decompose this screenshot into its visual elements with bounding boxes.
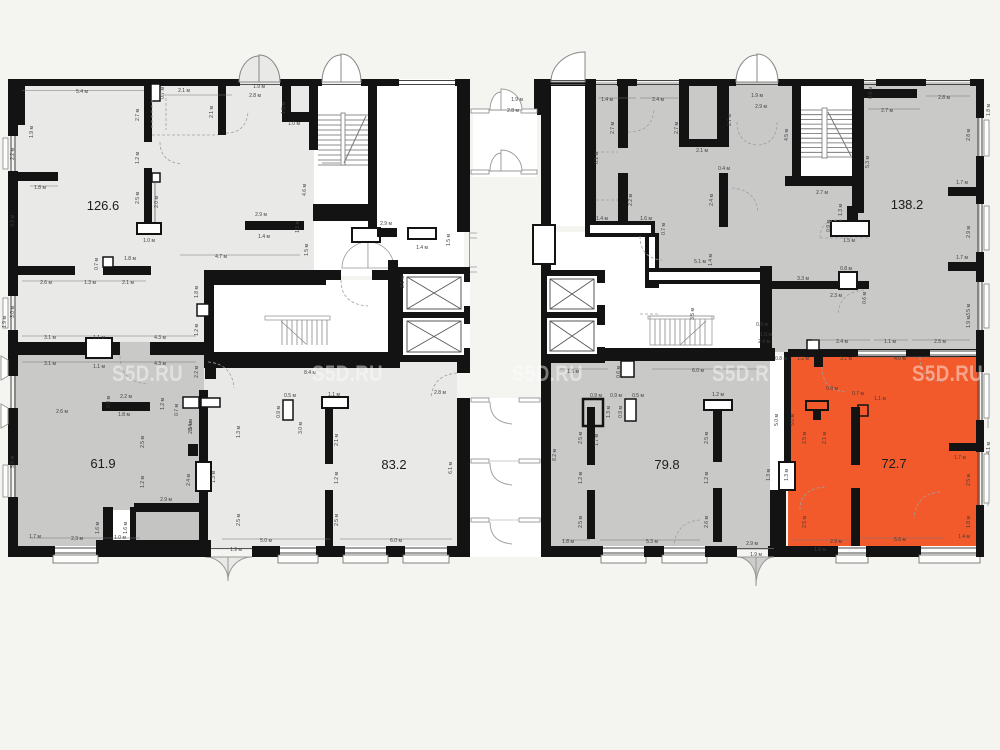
- svg-text:1.7 м: 1.7 м: [29, 534, 41, 540]
- svg-text:2.2 м: 2.2 м: [628, 194, 634, 206]
- svg-text:2.4 м: 2.4 м: [652, 97, 664, 103]
- svg-text:3.1 м: 3.1 м: [44, 335, 56, 341]
- svg-text:1.4 м: 1.4 м: [596, 216, 608, 222]
- svg-text:1.7 м: 1.7 м: [594, 434, 600, 446]
- svg-text:0.8 м: 0.8 м: [840, 266, 852, 272]
- svg-text:6.0 м: 6.0 м: [390, 538, 402, 544]
- svg-text:2.9 м: 2.9 м: [830, 539, 842, 545]
- svg-text:1.9 м: 1.9 м: [750, 552, 762, 558]
- svg-text:1.6 м: 1.6 м: [123, 522, 129, 534]
- svg-text:1.9 м: 1.9 м: [29, 126, 35, 138]
- svg-text:6.1 м: 6.1 м: [594, 152, 600, 164]
- svg-text:1.2 м: 1.2 м: [704, 472, 710, 484]
- svg-text:S5D.RU: S5D.RU: [312, 363, 383, 387]
- svg-text:1.1 м: 1.1 м: [874, 396, 886, 402]
- svg-text:2.7 м: 2.7 м: [881, 108, 893, 114]
- svg-text:3.3 м: 3.3 м: [797, 276, 809, 282]
- svg-text:1.2 м: 1.2 м: [194, 324, 200, 336]
- svg-text:5.3 м: 5.3 м: [646, 539, 658, 545]
- svg-text:0.9 м: 0.9 м: [756, 322, 768, 328]
- svg-text:8.2 м: 8.2 м: [552, 449, 558, 461]
- svg-text:1.9 м: 1.9 м: [253, 84, 265, 90]
- svg-text:2.0 м: 2.0 м: [154, 196, 160, 208]
- svg-text:5.0 м: 5.0 м: [790, 414, 796, 426]
- svg-text:5.4 м: 5.4 м: [76, 89, 88, 95]
- svg-text:2.3 м: 2.3 м: [71, 536, 83, 542]
- svg-text:2.5 м: 2.5 м: [140, 436, 146, 448]
- svg-text:4.7 м: 4.7 м: [215, 254, 227, 260]
- svg-text:0.8 м: 0.8 м: [106, 396, 112, 408]
- svg-text:S5D.RU: S5D.RU: [112, 363, 183, 387]
- svg-text:3.0 м: 3.0 м: [298, 422, 304, 434]
- svg-text:0.8 м: 0.8 м: [775, 356, 787, 362]
- svg-text:5.8 м: 5.8 м: [10, 456, 16, 468]
- svg-text:2.4 м: 2.4 м: [758, 339, 770, 345]
- svg-text:2.6 м: 2.6 м: [704, 516, 710, 528]
- svg-text:1.2 м: 1.2 м: [578, 472, 584, 484]
- svg-text:0.4 м: 0.4 м: [718, 166, 730, 172]
- svg-text:4.0 м: 4.0 м: [894, 356, 906, 362]
- svg-text:2.8 м: 2.8 м: [507, 108, 519, 114]
- svg-text:2.8 м: 2.8 м: [938, 95, 950, 101]
- svg-text:0.9 м: 0.9 м: [826, 220, 832, 232]
- svg-text:1.0 м: 1.0 м: [288, 121, 300, 127]
- svg-text:1.9 м: 1.9 м: [966, 316, 972, 328]
- svg-text:2.5 м: 2.5 м: [802, 432, 808, 444]
- svg-text:1.9 м: 1.9 м: [814, 547, 826, 553]
- svg-text:2.7 м: 2.7 м: [610, 122, 616, 134]
- svg-text:2.5 м: 2.5 м: [578, 432, 584, 444]
- svg-text:2.1 м: 2.1 м: [696, 148, 708, 154]
- svg-text:3.5 м: 3.5 м: [690, 308, 696, 320]
- svg-text:1.4 м: 1.4 м: [601, 97, 613, 103]
- svg-text:1.5 м: 1.5 м: [295, 221, 301, 233]
- svg-text:3.1 м: 3.1 м: [840, 356, 852, 362]
- svg-text:1.3 м: 1.3 м: [84, 280, 96, 286]
- svg-text:2.9 м: 2.9 м: [755, 104, 767, 110]
- svg-text:1.8 м: 1.8 м: [966, 516, 972, 528]
- svg-text:1.5 м: 1.5 м: [843, 238, 855, 244]
- svg-text:2.8 м: 2.8 м: [966, 129, 972, 141]
- svg-text:2.7 м: 2.7 м: [727, 114, 733, 126]
- svg-text:79.8: 79.8: [654, 457, 679, 472]
- svg-text:1.3 м: 1.3 м: [606, 406, 612, 418]
- svg-text:83.2: 83.2: [381, 457, 406, 472]
- svg-text:1.9 м: 1.9 м: [751, 93, 763, 99]
- svg-text:0.7 м: 0.7 м: [160, 87, 166, 99]
- svg-text:6.0 м: 6.0 м: [692, 368, 704, 374]
- svg-text:1.5 м: 1.5 м: [281, 102, 287, 114]
- svg-text:0.6 м: 0.6 м: [862, 292, 868, 304]
- svg-text:2.6 м: 2.6 м: [40, 280, 52, 286]
- svg-text:1.6 м: 1.6 м: [640, 216, 652, 222]
- svg-text:0.9 м: 0.9 м: [826, 386, 838, 392]
- svg-text:0.6 м: 0.6 м: [616, 366, 622, 378]
- svg-text:0.5 м: 0.5 м: [284, 393, 296, 399]
- svg-text:0.7 м: 0.7 м: [852, 391, 864, 397]
- svg-text:2.5 м: 2.5 м: [704, 432, 710, 444]
- svg-text:1.7 м: 1.7 м: [956, 180, 968, 186]
- svg-text:1.3 м: 1.3 м: [784, 469, 790, 481]
- svg-text:1.5 м: 1.5 м: [446, 234, 452, 246]
- svg-text:1.2 м: 1.2 м: [135, 152, 141, 164]
- svg-text:1.4 м: 1.4 м: [708, 254, 714, 266]
- svg-text:0.9 м: 0.9 м: [276, 406, 282, 418]
- svg-text:3.5 м: 3.5 м: [966, 304, 972, 316]
- svg-text:61.9: 61.9: [90, 456, 115, 471]
- svg-text:2.7 м: 2.7 м: [135, 109, 141, 121]
- svg-text:1.3 м: 1.3 м: [236, 426, 242, 438]
- svg-text:5.3 м: 5.3 м: [865, 156, 871, 168]
- svg-text:126.6: 126.6: [87, 198, 120, 213]
- svg-text:2.9 м: 2.9 м: [255, 212, 267, 218]
- svg-text:2.5 м: 2.5 м: [966, 474, 972, 486]
- svg-text:S5D.RU: S5D.RU: [712, 363, 783, 387]
- svg-text:1.8 м: 1.8 м: [34, 185, 46, 191]
- svg-text:2.7 м: 2.7 м: [816, 190, 828, 196]
- svg-text:1.6 м: 1.6 м: [760, 332, 772, 338]
- svg-text:4.3 м: 4.3 м: [154, 335, 166, 341]
- svg-text:1.3 м: 1.3 м: [766, 469, 772, 481]
- svg-text:3.9 м: 3.9 м: [10, 215, 16, 227]
- svg-text:1.1 м: 1.1 м: [328, 392, 340, 398]
- svg-text:72.7: 72.7: [881, 456, 906, 471]
- svg-text:2.2 м: 2.2 м: [194, 366, 200, 378]
- svg-text:1.8 м: 1.8 м: [562, 539, 574, 545]
- svg-text:2.8 м: 2.8 м: [249, 93, 261, 99]
- svg-text:0.9 м: 0.9 м: [610, 393, 622, 399]
- svg-text:2.5 м: 2.5 м: [934, 339, 946, 345]
- svg-text:2.1 м: 2.1 м: [178, 88, 190, 94]
- svg-text:1.3 м: 1.3 м: [838, 204, 844, 216]
- svg-text:1.1 м: 1.1 м: [884, 339, 896, 345]
- svg-text:1.2 м: 1.2 м: [140, 476, 146, 488]
- svg-text:138.2: 138.2: [891, 197, 924, 212]
- svg-text:0.9 м: 0.9 м: [868, 87, 874, 99]
- svg-text:5.0 м: 5.0 м: [774, 414, 780, 426]
- svg-text:4.6 м: 4.6 м: [302, 184, 308, 196]
- svg-text:1.2 м: 1.2 м: [797, 356, 809, 362]
- svg-text:1.7 м: 1.7 м: [956, 255, 968, 261]
- svg-text:1.8 м: 1.8 м: [118, 412, 130, 418]
- svg-text:1.9 м: 1.9 м: [2, 316, 8, 328]
- svg-text:0.9 м: 0.9 м: [590, 393, 602, 399]
- svg-text:2.4 м: 2.4 м: [186, 474, 192, 486]
- svg-text:S5D.RU: S5D.RU: [912, 363, 983, 387]
- svg-text:1.9 м: 1.9 м: [511, 97, 523, 103]
- svg-text:0.9 м: 0.9 м: [618, 406, 624, 418]
- svg-text:2.1 м: 2.1 м: [122, 280, 134, 286]
- svg-text:2.1 м: 2.1 м: [822, 432, 828, 444]
- svg-text:0.7 м: 0.7 м: [661, 223, 667, 235]
- svg-text:1.2 м: 1.2 м: [712, 392, 724, 398]
- svg-text:5.1 м: 5.1 м: [694, 259, 706, 265]
- svg-text:2.6 м: 2.6 м: [56, 409, 68, 415]
- svg-text:0.7 м: 0.7 м: [94, 258, 100, 270]
- svg-text:2.3 м: 2.3 м: [830, 293, 842, 299]
- svg-text:2.5 м: 2.5 м: [188, 422, 194, 434]
- svg-text:2.2 м: 2.2 м: [10, 148, 16, 160]
- svg-text:1.0 м: 1.0 м: [114, 535, 126, 541]
- svg-text:2.7 м: 2.7 м: [674, 122, 680, 134]
- svg-text:1.4 м: 1.4 м: [958, 534, 970, 540]
- svg-text:2.5 м: 2.5 м: [802, 516, 808, 528]
- svg-text:5.6 м: 5.6 м: [894, 537, 906, 543]
- svg-text:1.8 м: 1.8 м: [986, 104, 992, 116]
- svg-text:1.0 м: 1.0 м: [143, 238, 155, 244]
- svg-text:6.1 м: 6.1 м: [448, 462, 454, 474]
- svg-text:1.4 м: 1.4 м: [416, 245, 428, 251]
- svg-text:1.1 м: 1.1 м: [93, 364, 105, 370]
- svg-text:2.1 м: 2.1 м: [209, 106, 215, 118]
- svg-text:2.8 м: 2.8 м: [434, 390, 446, 396]
- svg-text:1.3 м: 1.3 м: [211, 471, 217, 483]
- svg-text:1.4 м: 1.4 м: [258, 234, 270, 240]
- svg-text:3.1 м: 3.1 м: [44, 361, 56, 367]
- svg-text:2.9 м: 2.9 м: [160, 497, 172, 503]
- svg-text:2.4 м: 2.4 м: [836, 339, 848, 345]
- svg-text:4.1 м: 4.1 м: [986, 442, 992, 454]
- svg-text:S5D.RU: S5D.RU: [512, 363, 583, 387]
- svg-text:2.1 м: 2.1 м: [334, 434, 340, 446]
- svg-text:1.5 м: 1.5 м: [304, 244, 310, 256]
- svg-text:2.2 м: 2.2 м: [120, 394, 132, 400]
- svg-text:1.2 м: 1.2 м: [160, 398, 166, 410]
- svg-text:2.5 м: 2.5 м: [334, 514, 340, 526]
- svg-text:3.0 м: 3.0 м: [10, 306, 16, 318]
- svg-text:2.9 м: 2.9 м: [380, 221, 392, 227]
- svg-text:2.5 м: 2.5 м: [578, 516, 584, 528]
- svg-text:5.0 м: 5.0 м: [260, 538, 272, 544]
- svg-text:4.5 м: 4.5 м: [784, 129, 790, 141]
- svg-text:2.5 м: 2.5 м: [236, 514, 242, 526]
- svg-text:1.9 м: 1.9 м: [230, 547, 242, 553]
- svg-text:2.9 м: 2.9 м: [966, 226, 972, 238]
- svg-text:1.7 м: 1.7 м: [954, 455, 966, 461]
- svg-text:1.6 м: 1.6 м: [95, 522, 101, 534]
- svg-text:1.1 м: 1.1 м: [93, 335, 105, 341]
- svg-text:0.5 м: 0.5 м: [632, 393, 644, 399]
- svg-text:2.9 м: 2.9 м: [746, 541, 758, 547]
- svg-text:2.5 м: 2.5 м: [135, 192, 141, 204]
- svg-text:2.1 м: 2.1 м: [400, 276, 406, 288]
- svg-text:1.8 м: 1.8 м: [124, 256, 136, 262]
- svg-text:1.2 м: 1.2 м: [334, 472, 340, 484]
- svg-text:2.4 м: 2.4 м: [709, 194, 715, 206]
- svg-text:0.7 м: 0.7 м: [174, 404, 180, 416]
- svg-text:1.8 м: 1.8 м: [194, 286, 200, 298]
